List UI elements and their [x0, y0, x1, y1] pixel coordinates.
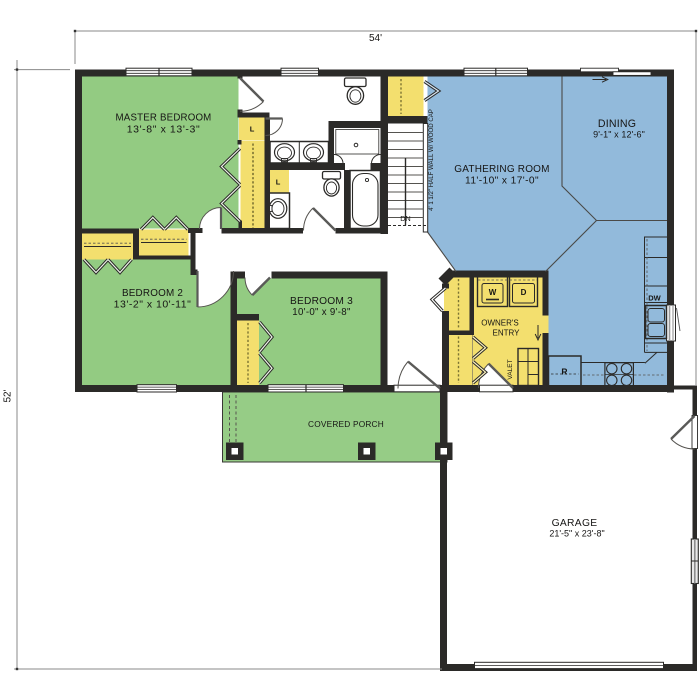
svg-text:GARAGE: GARAGE: [552, 518, 598, 529]
svg-text:13'-8" x 13'-3": 13'-8" x 13'-3": [127, 124, 201, 136]
svg-text:DN: DN: [400, 214, 410, 223]
svg-text:4' 1 1/2" HALF WALL W/ WOOD CA: 4' 1 1/2" HALF WALL W/ WOOD CAP: [428, 109, 435, 211]
svg-text:COVERED PORCH: COVERED PORCH: [308, 419, 384, 429]
svg-text:L: L: [276, 178, 281, 187]
svg-text:52': 52': [3, 389, 14, 402]
svg-text:R: R: [561, 367, 567, 377]
svg-text:DW: DW: [648, 294, 661, 303]
svg-text:GATHERING ROOM: GATHERING ROOM: [454, 164, 549, 175]
svg-text:ENTRY: ENTRY: [493, 329, 521, 338]
svg-text:9'-1" x 12'-6": 9'-1" x 12'-6": [593, 130, 645, 140]
svg-text:13'-2" x 10'-11": 13'-2" x 10'-11": [114, 299, 192, 311]
svg-text:MASTER BEDROOM: MASTER BEDROOM: [116, 113, 212, 124]
svg-text:D: D: [521, 288, 527, 297]
svg-text:BEDROOM 2: BEDROOM 2: [122, 288, 183, 299]
svg-text:10'-0" x 9'-8": 10'-0" x 9'-8": [292, 307, 351, 318]
svg-text:DINING: DINING: [598, 118, 636, 130]
svg-text:11'-10" x 17'-0": 11'-10" x 17'-0": [465, 176, 539, 187]
svg-text:OWNER'S: OWNER'S: [481, 319, 519, 328]
svg-text:VALET: VALET: [507, 359, 514, 379]
svg-text:W: W: [489, 288, 497, 297]
svg-text:BEDROOM 3: BEDROOM 3: [290, 296, 353, 307]
svg-text:L: L: [250, 125, 255, 134]
svg-text:54': 54': [369, 33, 382, 44]
svg-text:21'-5" x 23'-8": 21'-5" x 23'-8": [549, 529, 604, 539]
